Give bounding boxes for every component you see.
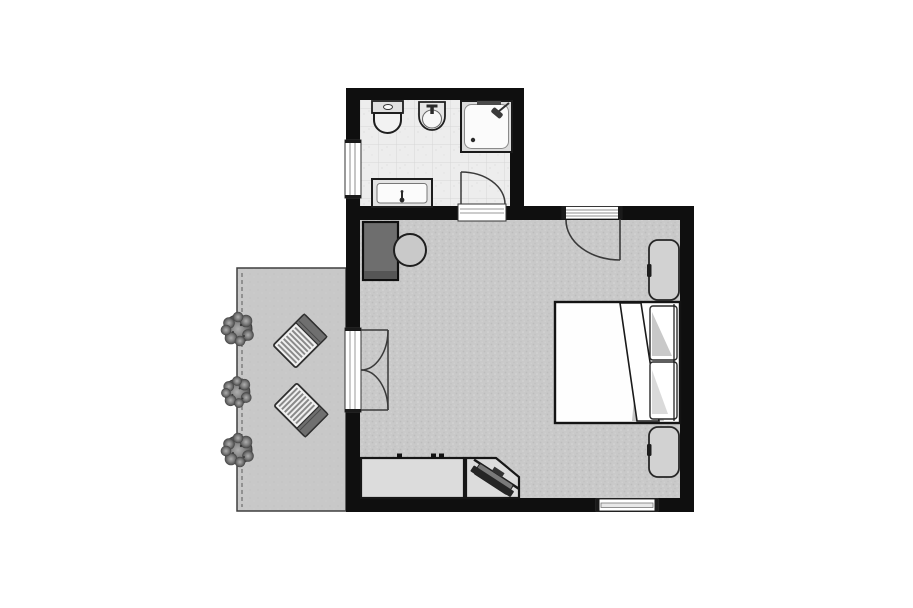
floor-plan-canvas [0,0,913,608]
terrace [221,268,346,511]
bidet [419,102,445,130]
pillow-bottom [650,362,677,419]
pillow-top [650,306,677,360]
nightstand-handle-icon [647,264,652,277]
nightstand-top [647,240,679,300]
floor-plan [0,0,913,608]
dresser-counter [361,454,464,499]
toilet [372,101,403,133]
wardrobe-unit [363,222,398,280]
shower-door-bar [477,101,501,105]
wall-bathroom-top [346,88,524,100]
knob-icon [439,454,444,459]
drain-icon [471,138,475,142]
knob-icon [397,454,402,459]
nightstand-handle-icon [647,444,652,456]
knob-icon [431,454,436,459]
wall-right [680,206,694,512]
vanity-sink [372,179,432,207]
round-stool [394,234,426,266]
bedroom-window [596,499,658,511]
nightstand-bottom [647,427,679,477]
wall-top [346,206,694,220]
shower [461,101,512,152]
bathroom-window [345,140,361,198]
double-bed [555,302,680,423]
